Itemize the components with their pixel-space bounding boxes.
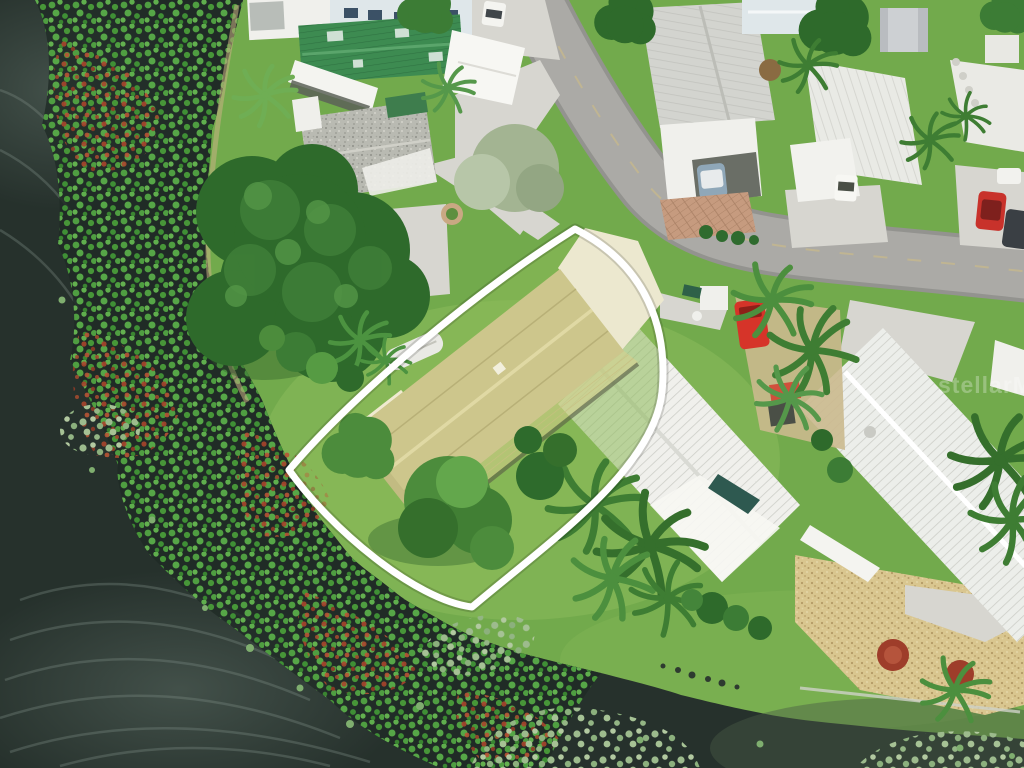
small-white-carport — [292, 96, 322, 132]
screened-porch — [249, 1, 284, 31]
white-table — [692, 311, 702, 321]
golf-cart-top — [481, 1, 506, 28]
lot-cypress-2 — [543, 433, 577, 467]
car-blue-white — [696, 163, 727, 200]
gambrel-shed-top — [888, 8, 918, 52]
car-red-glass — [980, 199, 1002, 221]
roof-vent-n2 — [864, 426, 876, 438]
cart-white — [997, 168, 1021, 184]
lot-dark-shrub — [514, 426, 542, 454]
golf-cart-h — [834, 174, 858, 201]
white-box-shed — [700, 286, 728, 310]
white-shed — [985, 35, 1019, 63]
aerial-photo: stellarMLS — [0, 0, 1024, 768]
aerial-photo-stage: stellarMLS — [0, 0, 1024, 768]
flower-ring-center — [446, 208, 458, 220]
planter-red-1-inner — [884, 646, 902, 664]
mls-watermark: stellarMLS — [938, 372, 1024, 398]
